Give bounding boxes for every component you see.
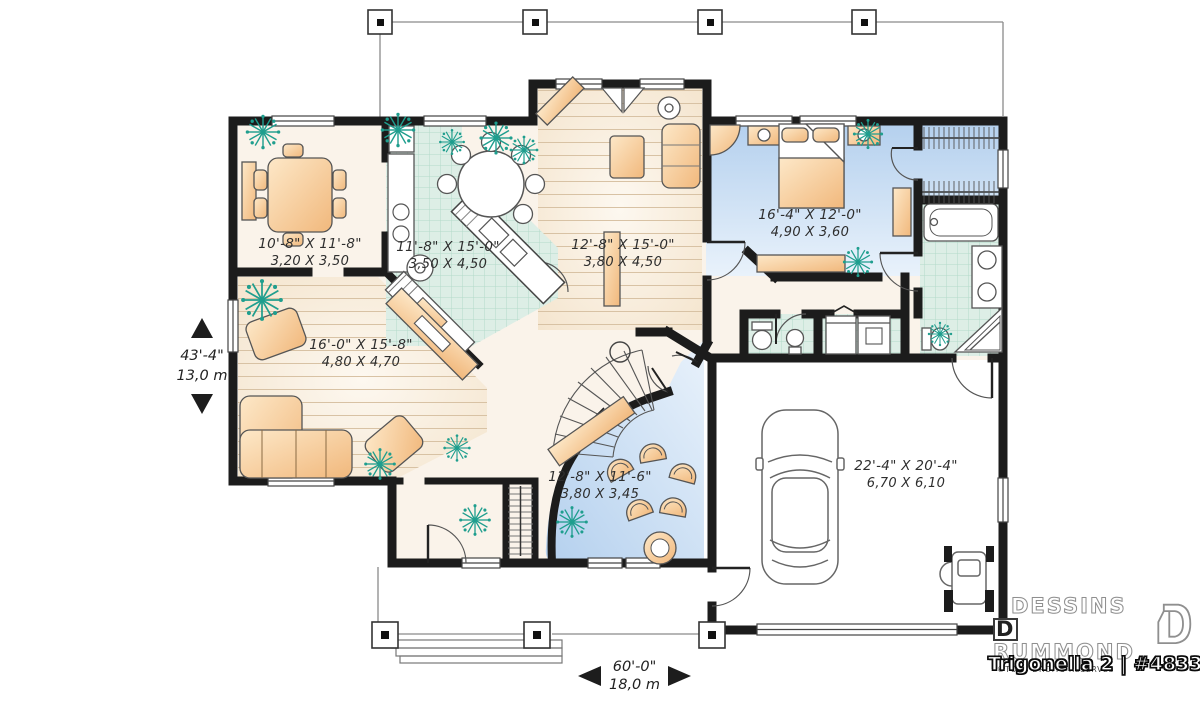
family-room-metric: 3,80 X 3,45 (561, 487, 639, 502)
garage-metric: 6,70 X 6,10 (867, 476, 945, 491)
great-room-metric: 4,80 X 4,70 (322, 355, 400, 370)
great-room-imperial: 16'-0" X 15'-8" (309, 337, 412, 353)
dining-room-imperial: 10'-8" X 11'-8" (258, 236, 361, 252)
dining-room-label: 10'-8" X 11'-8" 3,20 X 3,50 (258, 236, 361, 270)
living-room-label: 12'-8" X 15'-0" 3,80 X 4,50 (571, 237, 674, 271)
arrow-left-icon (578, 666, 601, 686)
kitchen-metric: 3,50 X 4,50 (409, 257, 487, 272)
master-bedroom-imperial: 16'-4" X 12'-0" (758, 207, 861, 223)
bed (779, 124, 844, 208)
dining-room-metric: 3,20 X 3,50 (271, 254, 349, 269)
powder-sink (787, 330, 804, 355)
overall-width-dimension: 60'-0" 18,0 m (578, 658, 691, 694)
depth-metric: 13,0 m (163, 366, 241, 386)
width-metric: 18,0 m (609, 676, 660, 694)
master-bedroom-metric: 4,90 X 3,60 (771, 225, 849, 240)
depth-imperial: 43'-4" (163, 346, 241, 366)
living-room-imperial: 12'-8" X 15'-0" (571, 237, 674, 253)
garage-door (757, 624, 957, 635)
family-room-label: 12'-8" X 11'-6" 3,80 X 3,45 (548, 469, 651, 503)
garage-label: 22'-4" X 20'-4" 6,70 X 6,10 (854, 458, 957, 492)
family-room-imperial: 12'-8" X 11'-6" (548, 469, 651, 485)
overall-depth-dimension: 43'-4" 13,0 m (163, 318, 241, 414)
car (756, 410, 844, 584)
brand-initial: D (993, 618, 1018, 641)
garage-imperial: 22'-4" X 20'-4" (854, 458, 957, 474)
brand-line1: DESSINS (993, 595, 1147, 618)
washer-dryer (826, 316, 890, 354)
drummond-logo-icon (1151, 598, 1193, 648)
powder-toilet (752, 322, 772, 350)
kitchen-imperial: 11'-8" X 15'-0" (396, 239, 499, 255)
master-bedroom-label: 16'-4" X 12'-0" 4,90 X 3,60 (758, 207, 861, 241)
living-room-metric: 3,80 X 4,50 (584, 255, 662, 270)
plan-title: Trigonella 2 | #4833 (988, 653, 1188, 675)
width-imperial: 60'-0" (609, 658, 660, 676)
arrow-right-icon (668, 666, 691, 686)
arrow-down-icon (191, 394, 213, 414)
arrow-up-icon (191, 318, 213, 338)
great-room-label: 16'-0" X 15'-8" 4,80 X 4,70 (309, 337, 412, 371)
kitchen-label: 11'-8" X 15'-0" 3,50 X 4,50 (396, 239, 499, 273)
floor-plan-page: 10'-8" X 11'-8" 3,20 X 3,50 11'-8" X 15'… (0, 0, 1200, 711)
